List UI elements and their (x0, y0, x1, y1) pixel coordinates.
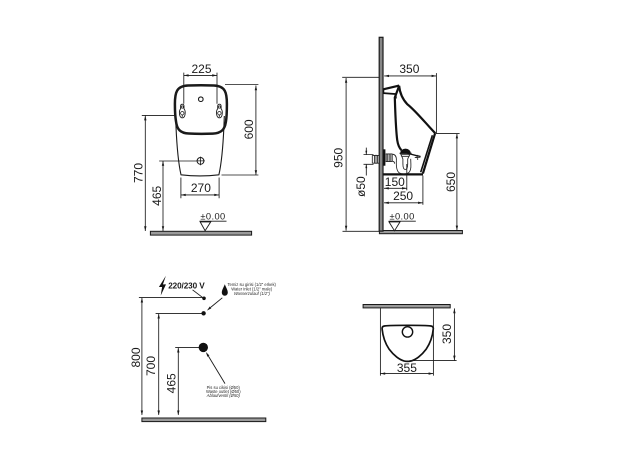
svg-text:465: 465 (150, 185, 164, 205)
svg-text:Wasserzulauf (1/2"): Wasserzulauf (1/2") (234, 291, 271, 296)
svg-text:770: 770 (132, 163, 146, 183)
svg-text:800: 800 (129, 347, 143, 367)
svg-text:465: 465 (164, 373, 178, 393)
svg-text:350: 350 (399, 62, 419, 76)
svg-text:220/230 V: 220/230 V (168, 282, 205, 291)
svg-text:225: 225 (191, 62, 211, 76)
svg-text:Ablaufventil (Ø50): Ablaufventil (Ø50) (206, 393, 241, 398)
svg-text:600: 600 (242, 119, 256, 139)
svg-text:150: 150 (385, 175, 405, 189)
svg-text:±0.00: ±0.00 (200, 212, 225, 222)
svg-text:ø50: ø50 (354, 176, 368, 197)
svg-text:650: 650 (444, 172, 458, 192)
svg-text:950: 950 (331, 147, 345, 167)
svg-text:250: 250 (393, 189, 413, 203)
svg-text:±0.00: ±0.00 (389, 212, 414, 222)
svg-text:350: 350 (440, 324, 454, 344)
svg-text:355: 355 (397, 361, 417, 375)
svg-text:270: 270 (191, 181, 211, 195)
svg-text:700: 700 (144, 356, 158, 376)
